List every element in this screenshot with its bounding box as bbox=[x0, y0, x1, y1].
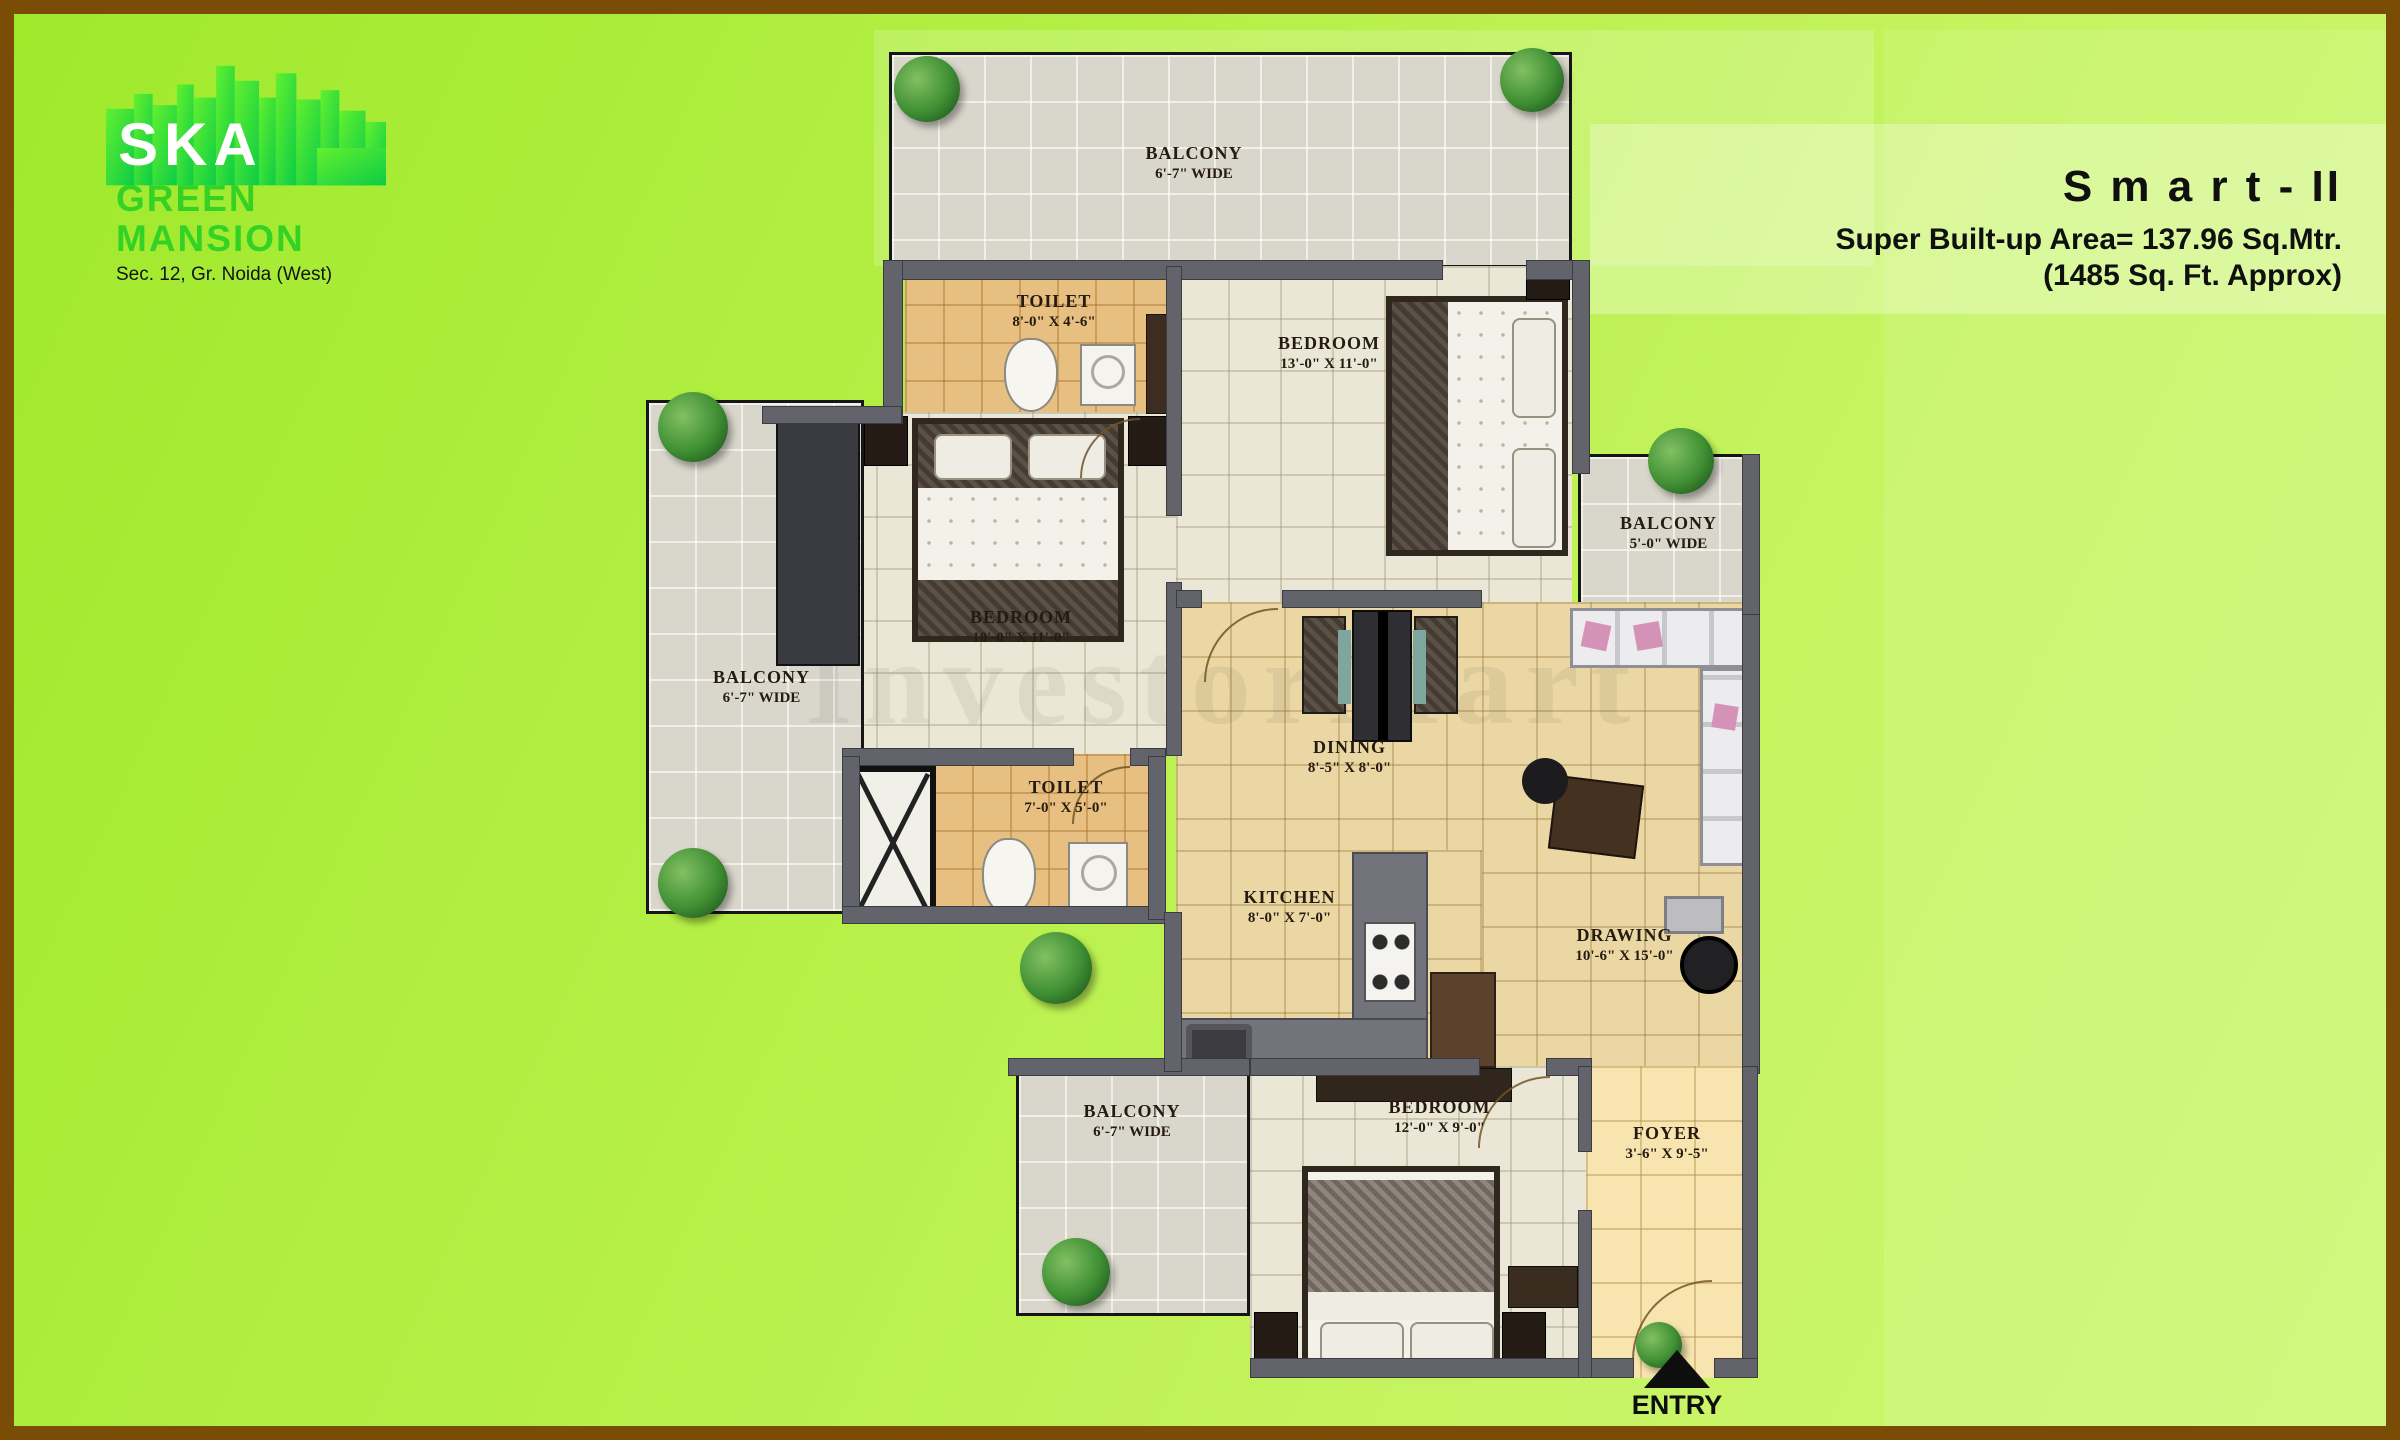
room-label-balcony-bottom: BALCONY 6'-7" WIDE bbox=[1032, 1100, 1232, 1141]
wall-segment bbox=[1742, 454, 1760, 622]
basin-bowl bbox=[1091, 355, 1125, 389]
tree-icon bbox=[1020, 932, 1092, 1004]
toilet-wc bbox=[982, 838, 1036, 916]
sofa-cushion bbox=[1633, 621, 1663, 651]
bed-pillow bbox=[1512, 318, 1556, 418]
wardrobe bbox=[1508, 1266, 1578, 1308]
wall-segment bbox=[842, 748, 1074, 766]
room-label-dining: DINING 8'-5" X 8'-0" bbox=[1262, 736, 1437, 777]
plan-title-block: S m a r t - II Super Built-up Area= 137.… bbox=[1622, 162, 2342, 294]
tree-icon bbox=[1648, 428, 1714, 494]
wall-segment bbox=[1250, 1358, 1634, 1378]
room-label-balcony-left: BALCONY 6'-7" WIDE bbox=[674, 666, 849, 707]
bedside-table bbox=[1254, 1312, 1298, 1364]
crockery-cabinet bbox=[1430, 972, 1496, 1068]
sofa-cushion bbox=[1581, 621, 1612, 652]
room-label-balcony-top: BALCONY 6'-7" WIDE bbox=[1074, 142, 1314, 183]
tree-icon bbox=[658, 392, 728, 462]
wall-segment bbox=[883, 260, 903, 424]
floor-plan-page: SKA GREEN MANSION Sec. 12, Gr. Noida (We… bbox=[0, 0, 2400, 1440]
wall-segment bbox=[883, 260, 1443, 280]
wall-segment bbox=[1282, 590, 1482, 608]
wall-segment bbox=[1166, 582, 1182, 756]
logo-line2: MANSION bbox=[116, 218, 305, 260]
tree-icon bbox=[1042, 1238, 1110, 1306]
basin-bowl bbox=[1081, 855, 1117, 891]
wall-segment bbox=[1742, 1066, 1758, 1378]
room-label-balcony-right: BALCONY 5'-0" WIDE bbox=[1586, 512, 1751, 553]
room-label-drawing: DRAWING 10'-6" X 15'-0" bbox=[1532, 924, 1717, 965]
room-label-kitchen: KITCHEN 8'-0" X 7'-0" bbox=[1202, 886, 1377, 927]
wall-segment bbox=[1714, 1358, 1758, 1378]
wall-segment bbox=[1008, 1058, 1250, 1076]
wall-segment bbox=[1164, 912, 1182, 1072]
room-label-bedroom-bottom: BEDROOM 12'-0" X 9'-0" bbox=[1332, 1096, 1547, 1137]
wall-segment bbox=[1578, 1210, 1592, 1378]
tree-icon bbox=[894, 56, 960, 122]
toilet-basin bbox=[1068, 842, 1128, 910]
wall-segment bbox=[762, 406, 902, 424]
bed-bottom-bedroom bbox=[1302, 1166, 1500, 1368]
logo-brand-text: SKA bbox=[118, 110, 263, 179]
room-label-bedroom-top: BEDROOM 13'-0" X 11'-0" bbox=[1219, 332, 1439, 373]
bed-blanket bbox=[1308, 1180, 1494, 1292]
logo-line1: GREEN bbox=[116, 178, 258, 220]
room-label-bedroom-mid: BEDROOM 10'-0" X 11'-0" bbox=[916, 606, 1126, 647]
dining-table bbox=[1352, 610, 1412, 742]
wall-segment bbox=[842, 756, 860, 924]
room-label-foyer: FOYER 3'-6" X 9'-5" bbox=[1608, 1122, 1726, 1163]
toilet-wc bbox=[1004, 338, 1058, 412]
wall-segment bbox=[842, 906, 1166, 924]
bedside-table bbox=[1502, 1312, 1546, 1364]
bed-pillow bbox=[934, 434, 1012, 480]
tree-icon bbox=[1500, 48, 1564, 112]
wardrobe bbox=[776, 416, 860, 666]
wall-segment bbox=[1176, 590, 1202, 608]
dining-chair-cushion bbox=[1338, 630, 1351, 704]
bed-sheet bbox=[1308, 1292, 1494, 1320]
stove bbox=[1364, 922, 1416, 1002]
plan-name: S m a r t - II bbox=[1622, 162, 2342, 212]
wall-segment bbox=[1166, 266, 1182, 516]
entry-label: ENTRY bbox=[1622, 1390, 1732, 1421]
desk-chair bbox=[1522, 758, 1568, 804]
toilet-basin bbox=[1080, 344, 1136, 406]
tree-icon bbox=[658, 848, 728, 918]
entry-arrow-icon bbox=[1644, 1350, 1710, 1388]
wall-segment bbox=[1572, 260, 1590, 474]
bed-pillow bbox=[1512, 448, 1556, 548]
sofa-cushion bbox=[1711, 703, 1738, 730]
elevator-symbol bbox=[850, 766, 936, 920]
sofa-top bbox=[1570, 608, 1756, 668]
room-label-toilet-mid: TOILET 7'-0" X 5'-0" bbox=[976, 776, 1156, 817]
wall-segment bbox=[1578, 1066, 1592, 1152]
wall-segment bbox=[1250, 1058, 1480, 1076]
plan-area-line1: Super Built-up Area= 137.96 Sq.Mtr. bbox=[1622, 222, 2342, 258]
wall-segment bbox=[1742, 614, 1760, 1074]
dining-chair-cushion bbox=[1413, 630, 1426, 704]
logo-subtitle: Sec. 12, Gr. Noida (West) bbox=[116, 264, 332, 286]
wall-segment bbox=[1148, 756, 1166, 920]
plan-area-line2: (1485 Sq. Ft. Approx) bbox=[1622, 258, 2342, 294]
bed-mattress bbox=[918, 488, 1118, 580]
room-label-toilet-top: TOILET 8'-0" X 4'-6" bbox=[944, 290, 1164, 331]
